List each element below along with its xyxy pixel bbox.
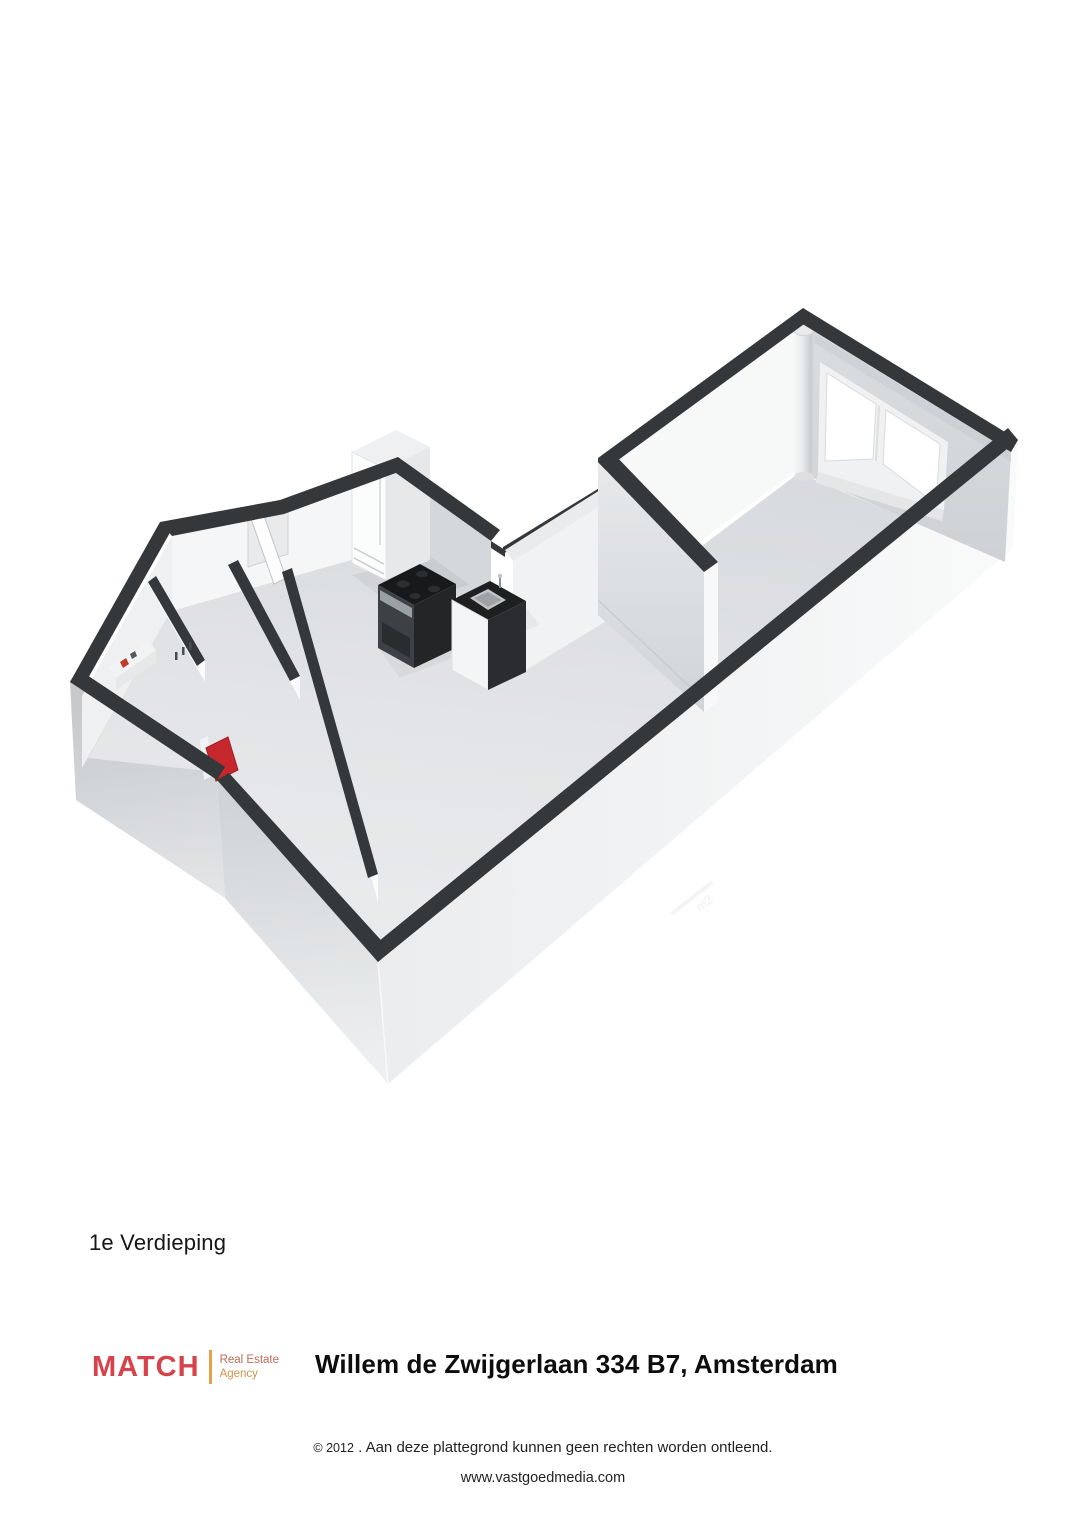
footer: MATCH Real Estate Agency Willem de Zwijg… [0,1346,1086,1390]
logo-divider [209,1350,212,1384]
copyright-text: . Aan deze plattegrond kunnen geen recht… [358,1439,773,1456]
brand-logo: MATCH Real Estate Agency [92,1350,279,1384]
copyright-note: © 2012 . Aan deze plattegrond kunnen gee… [0,1439,1086,1456]
floor-label: 1e Verdieping [89,1231,226,1255]
floorplan-3d: m2 [70,308,1018,1084]
stove [378,564,456,668]
pipe-column [794,325,814,483]
property-title: Willem de Zwijgerlaan 334 B7, Amsterdam [315,1349,838,1380]
floorplan-svg: m2 [0,0,1086,1536]
watermark: m2 [670,880,716,915]
logo-tagline-line2: Agency [220,1367,279,1381]
logo-tagline-line1: Real Estate [220,1353,279,1367]
brand-name: MATCH [92,1350,200,1384]
logo-tagline: Real Estate Agency [220,1353,279,1381]
copyright-year: © 2012 [313,1441,354,1455]
website-url: www.vastgoedmedia.com [0,1470,1086,1486]
page-root: m2 [0,0,1086,1536]
fridge [352,430,430,580]
